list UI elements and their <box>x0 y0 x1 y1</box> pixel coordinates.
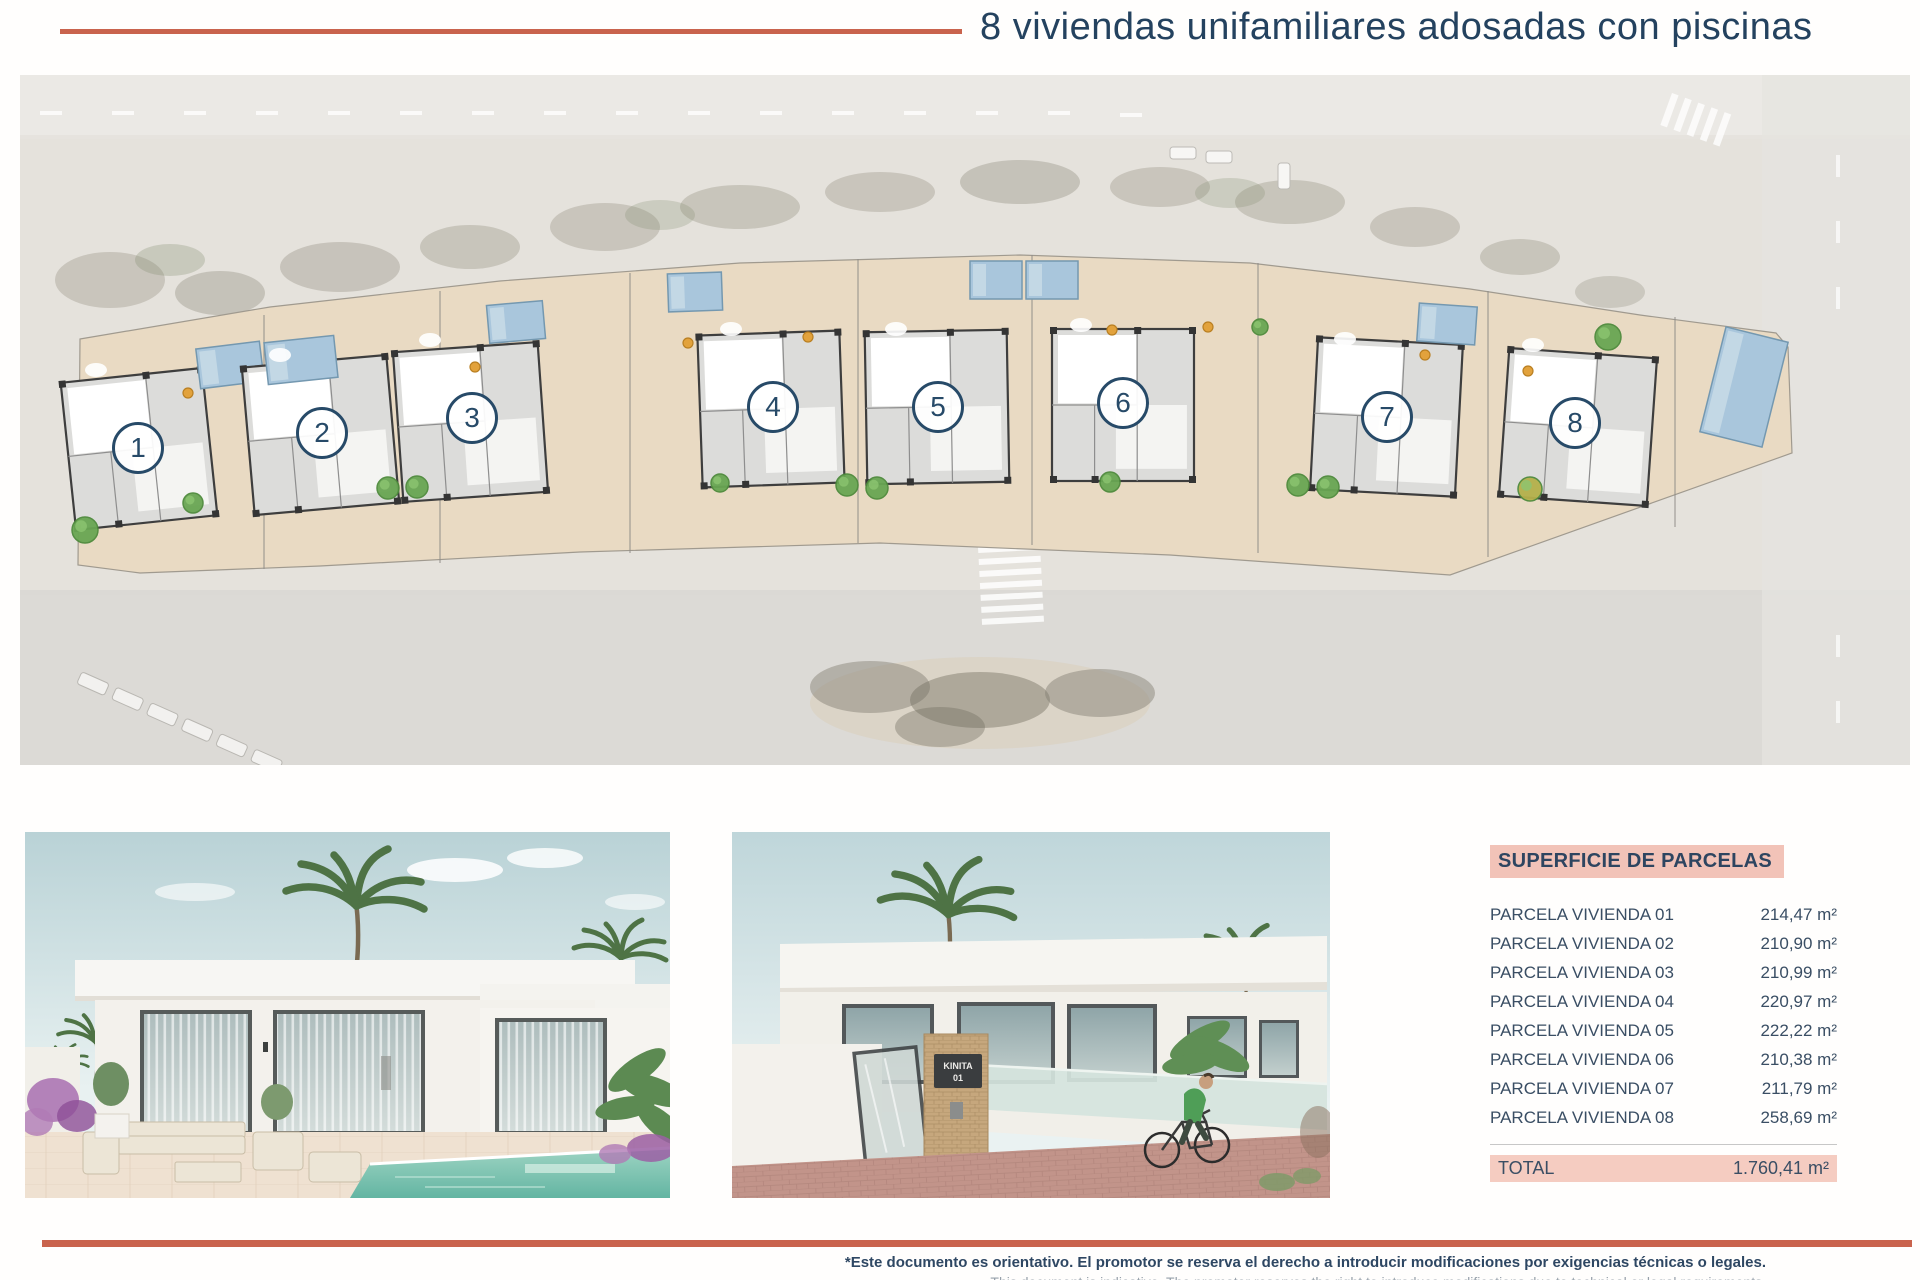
parcel-label: PARCELA VIVIENDA 04 <box>1490 987 1674 1016</box>
brochure-page: 8 viviendas unifamiliares adosadas con p… <box>0 0 1920 1280</box>
unit-number-badge-8: 8 <box>1549 397 1601 449</box>
pool-unit-5 <box>970 261 1022 299</box>
parcel-table-header: SUPERFICIE DE PARCELAS <box>1490 845 1784 878</box>
unit-number-badge-1: 1 <box>112 422 164 474</box>
disclaimer-spanish: *Este documento es orientativo. El promo… <box>845 1253 1766 1272</box>
parcel-row: PARCELA VIVIENDA 06210,38 m² <box>1490 1045 1837 1074</box>
parcel-label: PARCELA VIVIENDA 07 <box>1490 1074 1674 1103</box>
parcel-row: PARCELA VIVIENDA 08258,69 m² <box>1490 1103 1837 1132</box>
gate-sign-name: KINITA <box>943 1061 973 1071</box>
parcel-row: PARCELA VIVIENDA 05222,22 m² <box>1490 1016 1837 1045</box>
parcel-value: 220,97 m² <box>1760 987 1837 1016</box>
parcel-total-row: TOTAL 1.760,41 m² <box>1490 1155 1837 1182</box>
parcel-row: PARCELA VIVIENDA 01214,47 m² <box>1490 900 1837 929</box>
parcel-label: PARCELA VIVIENDA 03 <box>1490 958 1674 987</box>
unit-number-badge-2: 2 <box>296 407 348 459</box>
parcel-row: PARCELA VIVIENDA 02210,90 m² <box>1490 929 1837 958</box>
parcel-label: PARCELA VIVIENDA 08 <box>1490 1103 1674 1132</box>
parcel-table: SUPERFICIE DE PARCELAS PARCELA VIVIENDA … <box>1490 845 1837 1182</box>
parcel-value: 210,99 m² <box>1760 958 1837 987</box>
parcel-value: 214,47 m² <box>1760 900 1837 929</box>
parcel-total-label: TOTAL <box>1498 1158 1554 1179</box>
glass-doors <box>140 1010 607 1135</box>
gate-sign-number: 01 <box>953 1073 963 1083</box>
site-plan: 12345678 <box>20 75 1910 765</box>
parcel-label: PARCELA VIVIENDA 06 <box>1490 1045 1674 1074</box>
render-pool-villa <box>25 832 670 1198</box>
entrance-gate <box>854 1047 928 1171</box>
doorbell-panel <box>950 1102 963 1119</box>
parcel-label: PARCELA VIVIENDA 01 <box>1490 900 1674 929</box>
parcel-row: PARCELA VIVIENDA 03210,99 m² <box>1490 958 1837 987</box>
footer-accent-rule <box>42 1240 1912 1247</box>
unit-number-badge-7: 7 <box>1361 391 1413 443</box>
parcel-value: 210,90 m² <box>1760 929 1837 958</box>
unit-number-badge-4: 4 <box>747 381 799 433</box>
pool-unit-3 <box>486 301 545 344</box>
render-street-view: KINITA 01 <box>732 832 1330 1198</box>
parcel-value: 258,69 m² <box>1760 1103 1837 1132</box>
parcel-value: 211,79 m² <box>1762 1074 1837 1103</box>
parcel-table-divider <box>1490 1144 1837 1145</box>
parcel-value: 222,22 m² <box>1760 1016 1837 1045</box>
unit-number-badge-5: 5 <box>912 381 964 433</box>
header-accent-rule <box>60 29 962 34</box>
disclaimer-english: This document is indicative. The promote… <box>845 1273 1766 1280</box>
parcel-label: PARCELA VIVIENDA 05 <box>1490 1016 1674 1045</box>
pool-villa-illustration <box>25 832 670 1198</box>
pool-unit-4 <box>667 272 722 312</box>
parcel-row: PARCELA VIVIENDA 04220,97 m² <box>1490 987 1837 1016</box>
parcel-total-value: 1.760,41 m² <box>1733 1158 1829 1179</box>
parcel-row: PARCELA VIVIENDA 07211,79 m² <box>1490 1074 1837 1103</box>
parcel-value: 210,38 m² <box>1760 1045 1837 1074</box>
page-title: 8 viviendas unifamiliares adosadas con p… <box>980 6 1813 49</box>
unit-number-badge-3: 3 <box>446 392 498 444</box>
pool-unit-6 <box>1026 261 1078 299</box>
pool-unit-7 <box>1417 303 1478 345</box>
street-view-illustration: KINITA 01 <box>732 832 1330 1198</box>
parcel-rows: PARCELA VIVIENDA 01214,47 m²PARCELA VIVI… <box>1490 900 1837 1132</box>
disclaimer: *Este documento es orientativo. El promo… <box>845 1253 1766 1280</box>
unit-number-badge-6: 6 <box>1097 377 1149 429</box>
parcel-label: PARCELA VIVIENDA 02 <box>1490 929 1674 958</box>
